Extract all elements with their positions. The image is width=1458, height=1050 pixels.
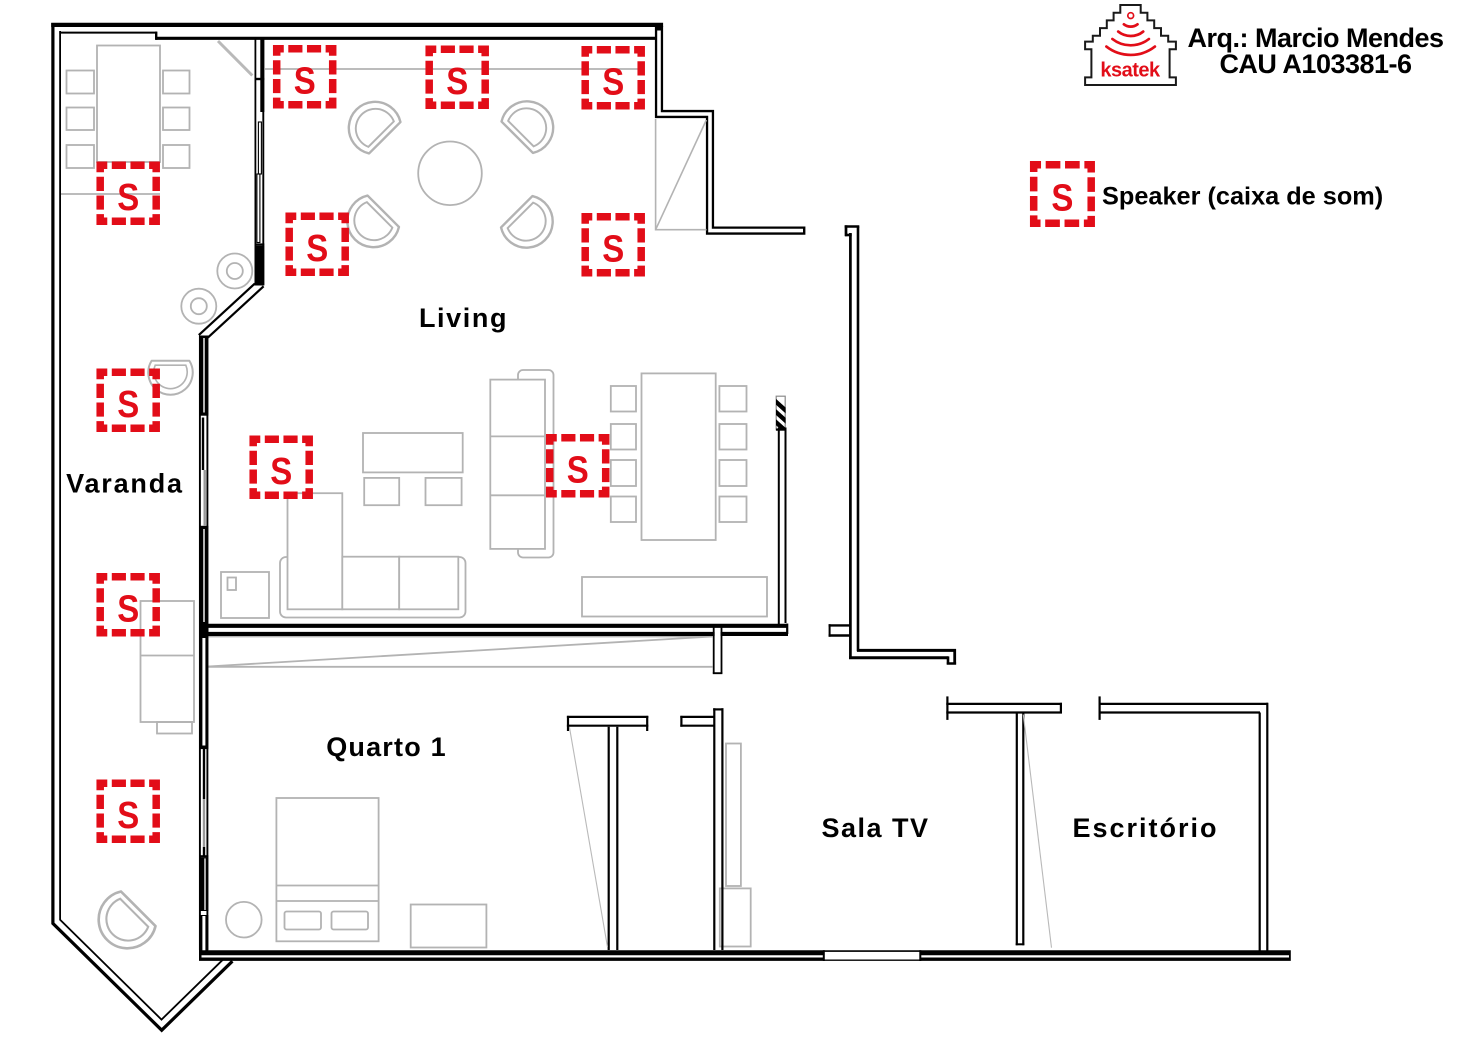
svg-text:S: S	[567, 449, 589, 491]
svg-text:CAU A103381-6: CAU A103381-6	[1219, 49, 1412, 79]
svg-text:Sala TV: Sala TV	[821, 813, 929, 843]
svg-text:S: S	[270, 451, 292, 493]
svg-text:S: S	[117, 384, 139, 426]
svg-text:Speaker (caixa de som): Speaker (caixa de som)	[1102, 183, 1383, 211]
svg-text:S: S	[117, 177, 139, 219]
svg-text:Living: Living	[419, 303, 508, 333]
svg-text:S: S	[602, 61, 624, 103]
svg-text:S: S	[117, 795, 139, 837]
svg-text:S: S	[446, 61, 468, 103]
svg-text:S: S	[117, 588, 139, 630]
svg-text:S: S	[1051, 178, 1073, 220]
svg-text:S: S	[306, 228, 328, 270]
svg-text:S: S	[294, 60, 316, 102]
svg-text:S: S	[602, 228, 624, 270]
svg-text:Escritório: Escritório	[1072, 813, 1218, 843]
svg-text:Varanda: Varanda	[66, 469, 184, 499]
svg-text:ksatek: ksatek	[1100, 60, 1161, 82]
svg-text:Quarto 1: Quarto 1	[326, 732, 447, 762]
